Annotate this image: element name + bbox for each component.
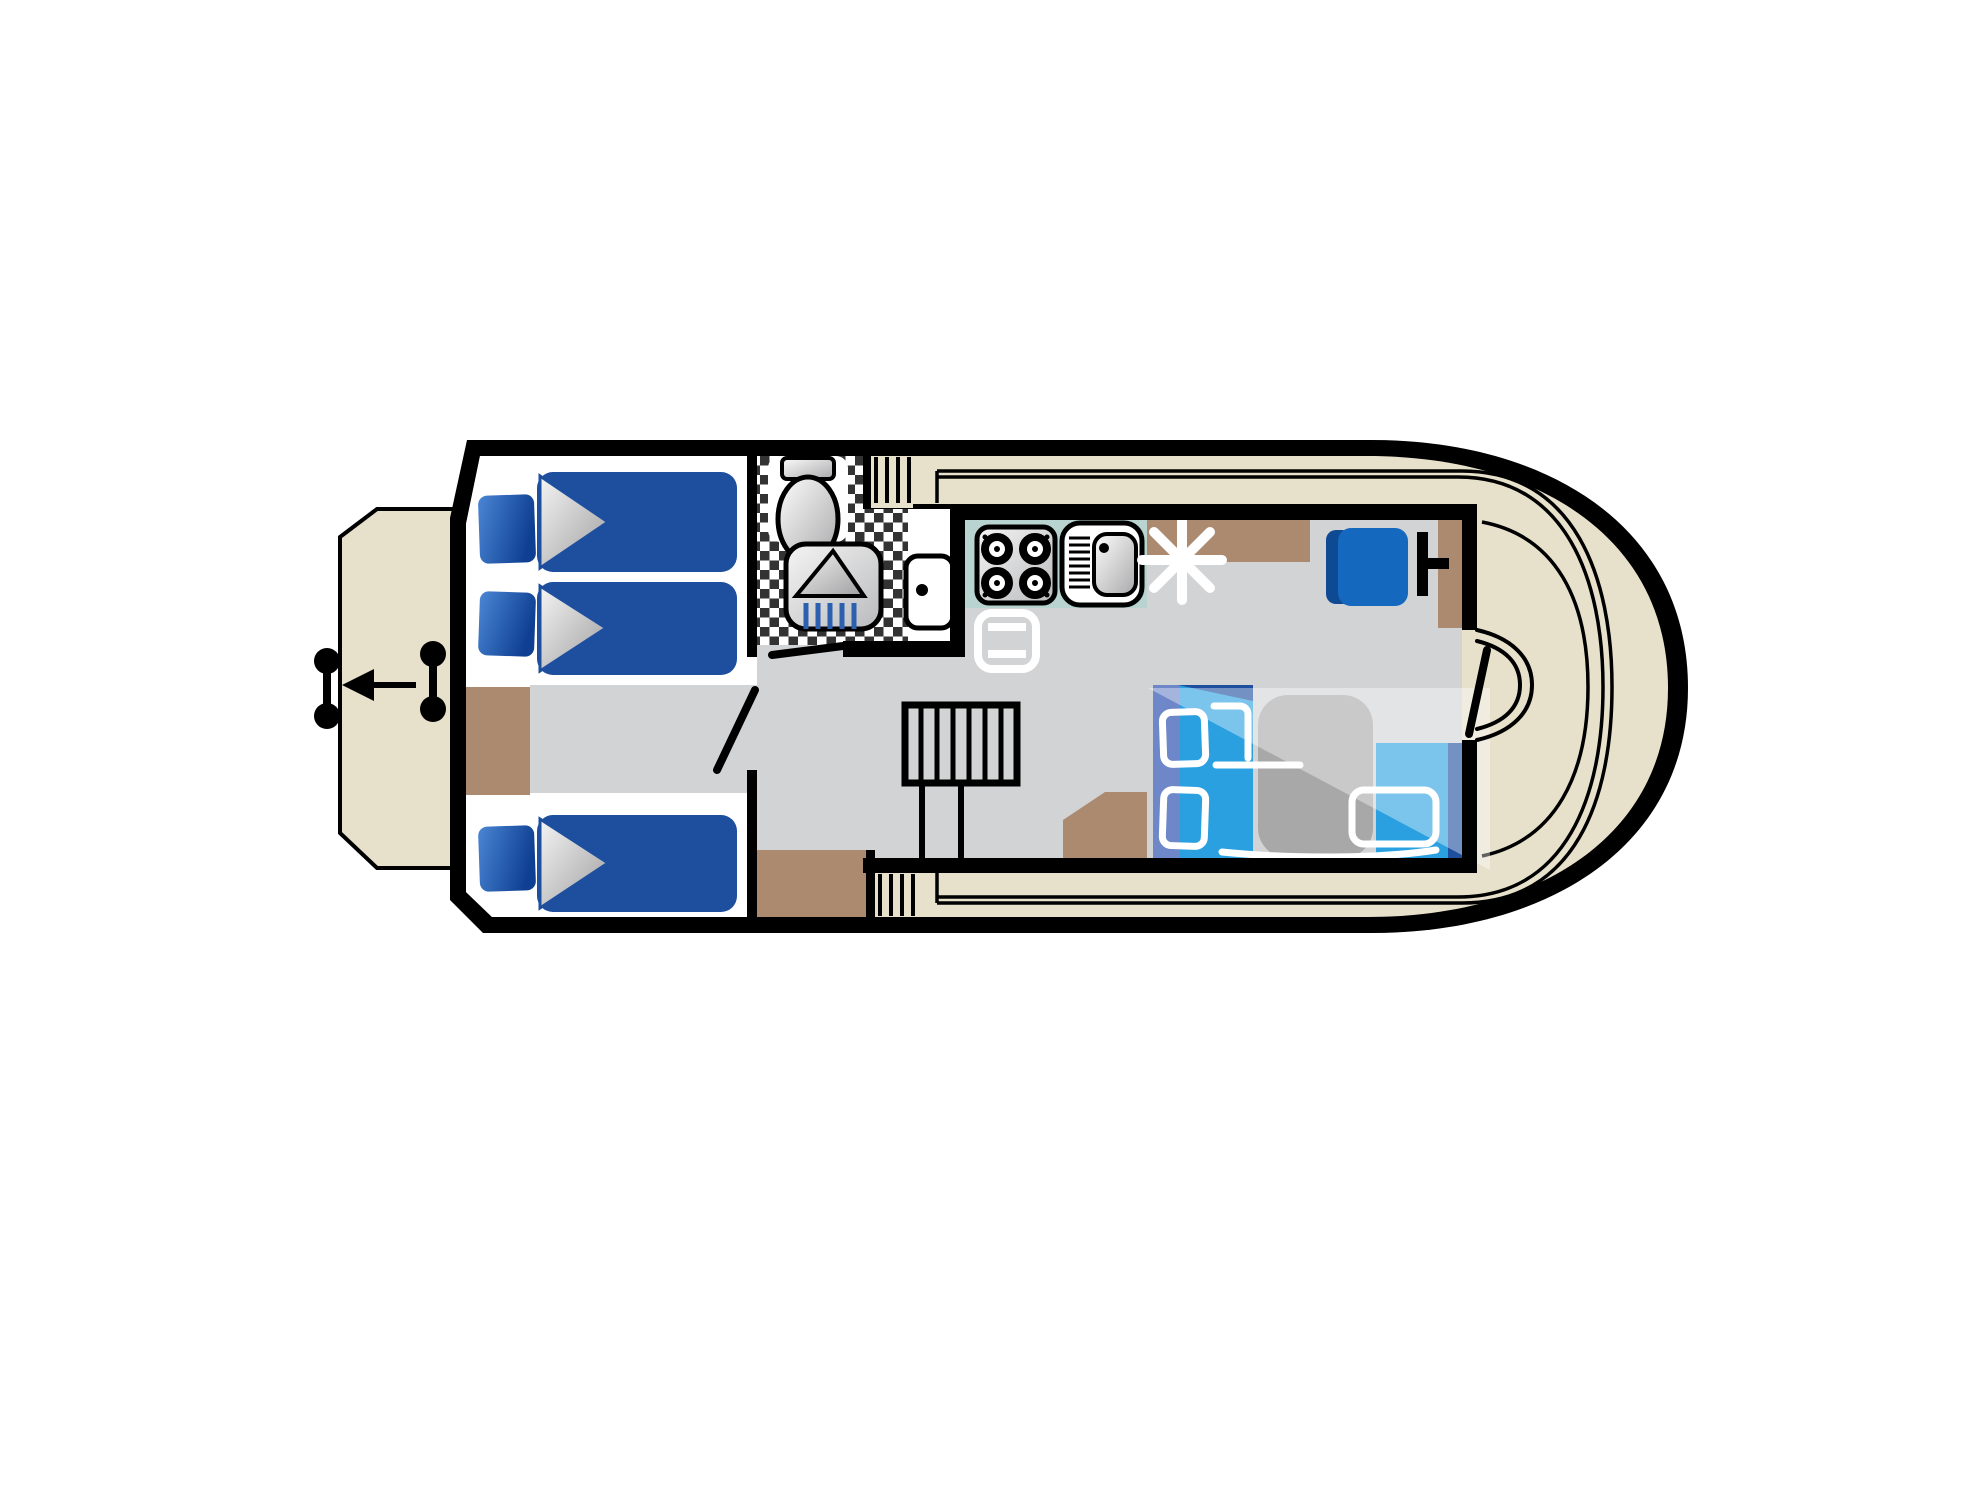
sink-icon bbox=[1062, 523, 1142, 605]
wall-connector-bottom bbox=[866, 850, 875, 917]
cabinet bbox=[757, 850, 870, 917]
helm-console bbox=[1438, 513, 1462, 628]
bow-platform bbox=[314, 509, 455, 868]
cabinet bbox=[466, 687, 530, 795]
pillow-icon bbox=[478, 825, 536, 892]
wall-cabin-right-upper bbox=[1462, 504, 1477, 630]
wall-saloon-top bbox=[950, 504, 1477, 520]
pillow-icon bbox=[478, 591, 536, 657]
wall-bathroom-right bbox=[950, 520, 965, 657]
floorplan-canvas bbox=[0, 0, 1980, 1485]
grab-handle-icon bbox=[314, 648, 340, 729]
washbasin-icon bbox=[906, 556, 953, 628]
wall-stub bbox=[747, 770, 757, 917]
boat-floorplan bbox=[0, 0, 1980, 1485]
dinette bbox=[1148, 685, 1490, 870]
stove-icon bbox=[977, 527, 1055, 603]
wall-cabin-right-lower bbox=[1462, 740, 1477, 858]
wall-bathroom-bottom bbox=[843, 641, 965, 657]
helm-seat bbox=[1326, 528, 1408, 606]
shower-icon bbox=[786, 544, 881, 629]
lamp-star-icon bbox=[1142, 520, 1222, 600]
wall-connector-top bbox=[863, 440, 871, 509]
pillow-icon bbox=[478, 494, 536, 564]
wall-bathroom-left bbox=[747, 456, 757, 657]
wall-saloon-bottom bbox=[863, 858, 1477, 873]
corridor-floor bbox=[530, 685, 757, 793]
